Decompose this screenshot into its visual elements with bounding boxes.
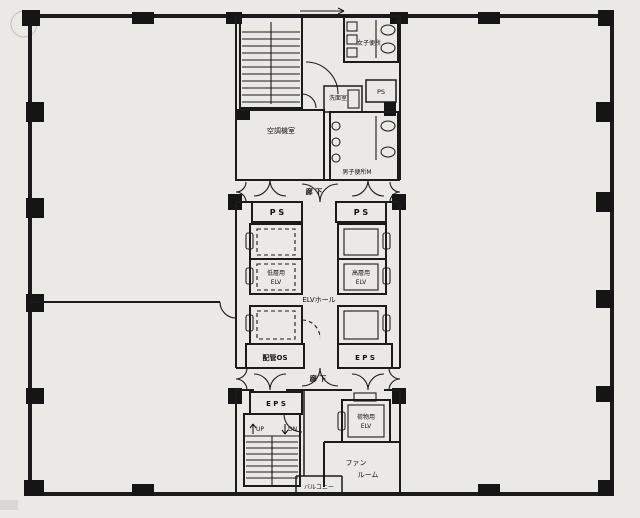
freight-elevator-label-2: ELV xyxy=(361,423,372,430)
floor-plan-scan: 空調機室 女子便所 洗面室 PS 男子便所M xyxy=(0,0,640,518)
fan-room: ファン ルーム xyxy=(324,442,400,487)
elevator-low-rise-label-1: 低層用 xyxy=(267,269,285,277)
toilet-fixture-icon xyxy=(381,147,395,157)
urinal-icon xyxy=(332,154,340,162)
washroom-label: 洗面室 xyxy=(329,94,347,102)
urinal-icon xyxy=(332,122,340,130)
freight-elevator: 荷物用 ELV xyxy=(338,393,390,442)
pipe-duct-os: 配管OS xyxy=(246,344,304,368)
eps-shaft-right-label: E P S xyxy=(355,354,375,362)
stairs-dn-label: DN xyxy=(288,426,297,433)
stair-door-arc xyxy=(302,94,316,108)
machine-room-door-arc xyxy=(306,62,338,94)
womens-toilet-label: 女子便所 xyxy=(357,39,381,47)
mens-toilet: 男子便所M xyxy=(330,112,398,180)
stairwell-south: UP DN xyxy=(244,414,300,486)
elevator-high-rise-bank: 高層用 ELV xyxy=(338,224,390,294)
stairwell-north xyxy=(240,16,316,108)
pipe-shaft-top: PS xyxy=(366,80,396,116)
future-door-arc xyxy=(302,320,320,338)
urinal-icon xyxy=(332,138,340,146)
floor-plan-drawing: 空調機室 女子便所 洗面室 PS 男子便所M xyxy=(0,0,640,518)
outer-wall xyxy=(30,16,612,494)
north-arrow-line xyxy=(300,8,344,14)
pipe-shaft-left: P S xyxy=(252,202,302,222)
pipe-duct-os-label: 配管OS xyxy=(263,353,288,362)
toilet-fixture-icon xyxy=(381,43,395,53)
elevator-high-rise-label-1: 高層用 xyxy=(352,269,370,277)
elevator-high-rise-label-2: ELV xyxy=(356,279,367,286)
scan-smudge xyxy=(0,500,18,510)
fan-room-label-2: ルーム xyxy=(358,471,379,479)
structural-columns xyxy=(22,10,614,496)
washroom: 洗面室 xyxy=(324,86,362,112)
womens-toilet: 女子便所 xyxy=(344,16,398,62)
pipe-shaft-right: P S xyxy=(336,202,386,222)
corridor-upper: 廊 下 xyxy=(236,180,400,202)
eps-shaft-right: E P S xyxy=(338,344,392,368)
pipe-shaft-left-label: P S xyxy=(270,208,285,217)
corridor-lower: 廊 下 xyxy=(236,368,400,390)
elevator-low-rise-label-2: ELV xyxy=(271,279,282,286)
pipe-shaft-top-label: PS xyxy=(377,88,385,96)
toilet-fixture-icon xyxy=(381,25,395,35)
balcony: バルコニー xyxy=(296,476,342,494)
balcony-label: バルコニー xyxy=(304,484,334,491)
elevator-right-lower xyxy=(338,306,390,344)
freight-elevator-label-1: 荷物用 xyxy=(357,413,375,421)
left-office-dividing-wall xyxy=(30,302,236,318)
machine-room: 空調機室 xyxy=(236,62,338,180)
mens-toilet-label: 男子便所M xyxy=(342,168,371,176)
stairs-up-label: UP xyxy=(256,426,264,433)
machine-room-label: 空調機室 xyxy=(267,126,295,135)
corridor-upper-label: 廊 下 xyxy=(306,187,322,196)
pipe-shaft-right-label: P S xyxy=(354,208,369,217)
toilet-fixture-icon xyxy=(381,121,395,131)
corridor-lower-label: 廊 下 xyxy=(310,374,326,383)
eps-shaft-left-label: E P S xyxy=(266,400,286,408)
elevator-hall-label: ELVホール xyxy=(302,296,335,304)
elevator-low-rise-bank: 低層用 ELV xyxy=(246,224,302,294)
elevator-future-left xyxy=(246,306,320,344)
fan-room-label-1: ファン xyxy=(346,459,367,467)
